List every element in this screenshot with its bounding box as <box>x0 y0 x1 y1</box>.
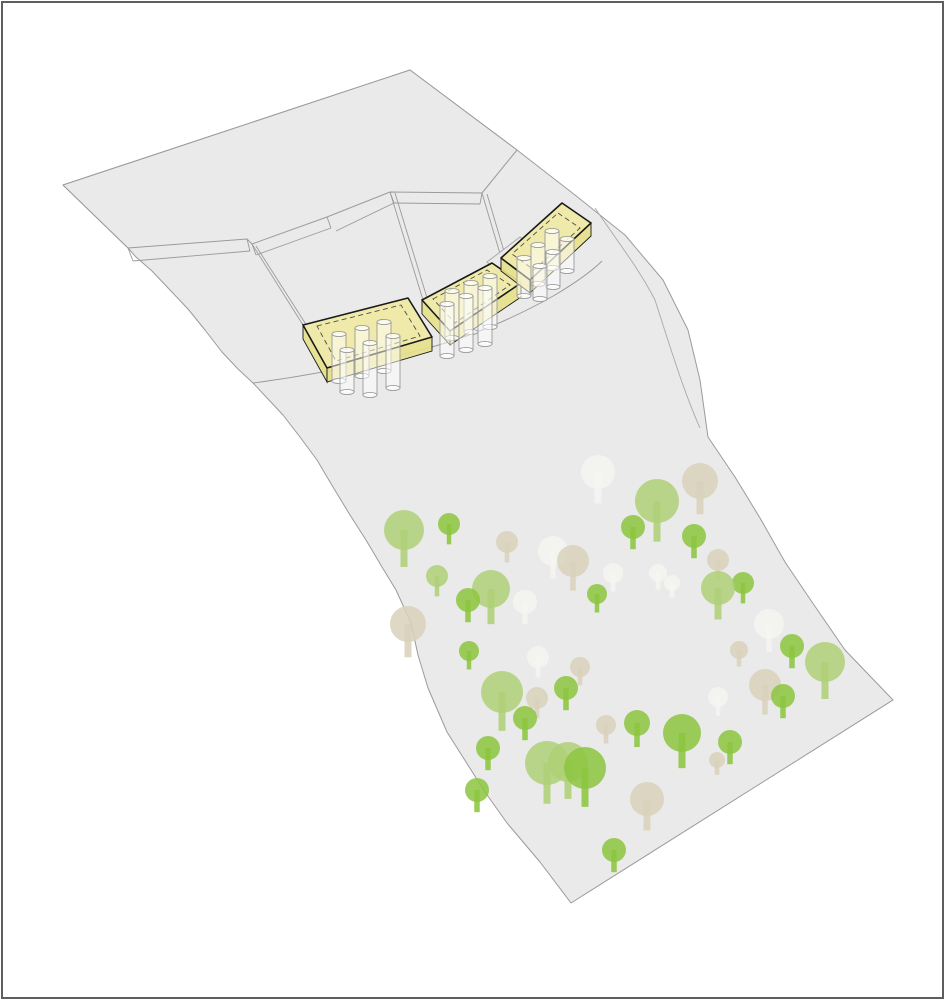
pile-bottom-cap <box>363 392 377 397</box>
tree-canopy <box>481 671 523 713</box>
tree-canopy <box>438 513 460 535</box>
pile-bottom-cap <box>533 296 547 301</box>
pile-top-cap <box>386 333 400 338</box>
tree-canopy <box>581 455 615 489</box>
tree-canopy <box>596 715 616 735</box>
pile-top-cap <box>478 285 492 290</box>
pile-body <box>533 266 547 299</box>
pile-body <box>340 350 354 392</box>
pile-body <box>546 252 560 287</box>
tree-canopy <box>730 641 748 659</box>
pile-bottom-cap <box>478 341 492 346</box>
tree-canopy <box>708 687 728 707</box>
tree-canopy <box>526 687 548 709</box>
pile-top-cap <box>363 340 377 345</box>
pile-foundation <box>560 236 574 273</box>
tree-canopy <box>663 714 701 752</box>
pile-top-cap <box>440 301 454 306</box>
pile-body <box>440 304 454 356</box>
tree-canopy <box>649 564 667 582</box>
pile-top-cap <box>459 293 473 298</box>
tree-canopy <box>476 736 500 760</box>
pile-foundation <box>340 347 354 394</box>
tree-canopy <box>496 531 518 553</box>
tree-canopy <box>718 730 742 754</box>
pile-top-cap <box>340 347 354 352</box>
pile-top-cap <box>533 263 547 268</box>
tree-canopy <box>771 684 795 708</box>
pile-bottom-cap <box>459 347 473 352</box>
pile-foundation <box>440 301 454 358</box>
pile-top-cap <box>355 325 369 330</box>
tree-canopy <box>709 752 725 768</box>
pile-top-cap <box>445 288 459 293</box>
tree-canopy <box>630 782 664 816</box>
tree-canopy <box>390 606 426 642</box>
tree-canopy <box>557 545 589 577</box>
tree-canopy <box>426 565 448 587</box>
pile-top-cap <box>377 319 391 324</box>
tree-canopy <box>564 747 606 789</box>
pile-foundation <box>459 293 473 352</box>
tree-canopy <box>587 584 607 604</box>
pile-foundation <box>546 249 560 289</box>
tree-canopy <box>701 571 735 605</box>
tree-canopy <box>465 778 489 802</box>
pile-top-cap <box>531 242 545 247</box>
pile-foundation <box>517 255 531 298</box>
pile-bottom-cap <box>546 284 560 289</box>
pile-body <box>560 239 574 271</box>
pile-bottom-cap <box>340 389 354 394</box>
tree-canopy <box>621 515 645 539</box>
tree-canopy <box>603 563 623 583</box>
pile-top-cap <box>332 331 346 336</box>
pile-body <box>459 296 473 350</box>
tree-canopy <box>513 706 537 730</box>
pile-top-cap <box>545 228 559 233</box>
pile-body <box>386 336 400 388</box>
tree-canopy <box>602 838 626 862</box>
pile-top-cap <box>560 236 574 241</box>
tree-canopy <box>513 590 537 614</box>
pile-bottom-cap <box>560 268 574 273</box>
tree-canopy <box>456 588 480 612</box>
pile-foundation <box>478 285 492 346</box>
pile-body <box>363 343 377 395</box>
pile-foundation <box>533 263 547 301</box>
pile-bottom-cap <box>517 293 531 298</box>
tree-canopy <box>624 710 650 736</box>
pile-bottom-cap <box>386 385 400 390</box>
tree-canopy <box>805 642 845 682</box>
tree-canopy <box>682 524 706 548</box>
pile-body <box>478 288 492 344</box>
pile-top-cap <box>546 249 560 254</box>
tree-canopy <box>732 572 754 594</box>
tree-canopy <box>527 646 549 668</box>
pile-body <box>517 258 531 296</box>
tree-canopy <box>570 657 590 677</box>
tree-canopy <box>459 641 479 661</box>
pile-bottom-cap <box>440 353 454 358</box>
tree-canopy <box>707 549 729 571</box>
tree-canopy <box>780 634 804 658</box>
tree-canopy <box>554 676 578 700</box>
pile-foundation <box>386 333 400 390</box>
tree-canopy <box>664 575 680 591</box>
pile-top-cap <box>464 280 478 285</box>
site-axonometric-diagram <box>0 0 945 1000</box>
tree-canopy <box>384 510 424 550</box>
tree-green <box>465 778 489 812</box>
tree-canopy <box>682 463 718 499</box>
pile-top-cap <box>517 255 531 260</box>
tree-canopy <box>635 479 679 523</box>
pile-top-cap <box>483 273 497 278</box>
diagram-canvas <box>0 0 945 1000</box>
tree-canopy <box>754 609 784 639</box>
pile-foundation <box>363 340 377 397</box>
